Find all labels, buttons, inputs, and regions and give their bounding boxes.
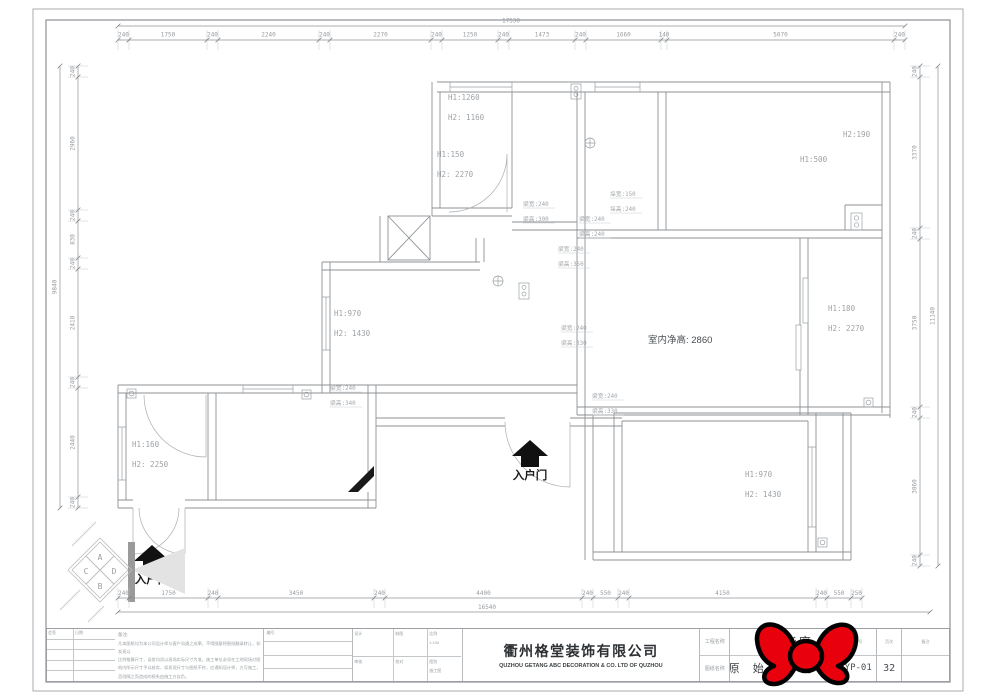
overall-dim: 16540	[478, 604, 496, 611]
compass-letter-c: C	[84, 567, 89, 576]
dim-label: 4150	[715, 590, 730, 597]
dim-label: 240	[912, 228, 919, 239]
drain-icon	[127, 389, 136, 398]
dim-label: 240	[894, 32, 905, 39]
dim-label: 550	[600, 590, 611, 597]
notes-line: 比例推算尺寸，误差均须以现场实际尺寸为准，施工单位必须在工地现场对图	[118, 656, 260, 664]
dim-label: 1750	[161, 32, 176, 39]
room-height-label: H2: 2270	[828, 324, 865, 333]
window-symbols	[118, 82, 816, 527]
sliding-door-symbol	[796, 278, 808, 370]
beam-label: 梁宽:240	[523, 200, 549, 208]
compass-letter-d: D	[112, 567, 117, 576]
dim-label: 5070	[773, 32, 788, 39]
drawing-no: YP-01	[840, 655, 876, 682]
dim-label: 3370	[912, 145, 919, 160]
beam-label: 梁高:330	[592, 407, 618, 415]
dim-label: 140	[659, 32, 670, 39]
room-height-label: H1:970	[334, 309, 362, 318]
room-height-label: H1:970	[745, 470, 773, 479]
dim-label: 1250	[463, 32, 478, 39]
dim-label: 3750	[912, 315, 919, 330]
annotation-layer: 2401750240224024022702401250240147324016…	[52, 18, 941, 615]
dim-label: 240	[208, 590, 219, 597]
beam-label: 梁高:340	[330, 399, 356, 407]
dim-label: 240	[319, 32, 330, 39]
dim-label: 240	[70, 497, 77, 508]
dim-label: 1750	[161, 590, 176, 597]
beam-label: 垛宽:150	[610, 190, 636, 198]
room-height-label: H1:160	[132, 440, 160, 449]
compass-letter-b: B	[98, 582, 103, 591]
door-arcs	[133, 154, 570, 554]
room-height-label: H1:180	[828, 304, 856, 313]
compass-letter-a: A	[98, 553, 103, 562]
page-no: 32	[877, 655, 901, 682]
entrance-label: 入户门	[135, 572, 170, 586]
drawing-no-label: 图号	[840, 629, 876, 655]
entrance-label: 入户门	[513, 468, 548, 482]
page-label: 页次	[877, 629, 901, 655]
ceiling-height-label: 室内净高: 2860	[648, 334, 712, 346]
drawing-no-column: 图号 YP-01	[839, 629, 876, 681]
dim-label: 2410	[70, 315, 77, 330]
dim-label: 240	[912, 555, 919, 566]
compass: A C D B	[60, 522, 185, 622]
dim-label: 240	[70, 210, 77, 221]
room-height-label: H2: 1430	[334, 329, 371, 338]
serial-column: 编号	[263, 629, 352, 681]
sign-table: 会签 日期 备注: 凡本图纸均为本公司设计师与客户沟通之成果，不得随意将图纸翻录…	[47, 629, 263, 681]
dim-label: 550	[834, 590, 845, 597]
drain-icon	[864, 398, 873, 407]
room-height-label: H1:500	[800, 155, 828, 164]
project-name: 吾悦华府	[730, 629, 839, 655]
room-height-label: H2: 1160	[448, 113, 485, 122]
company-name-cn: 衢州格堂装饰有限公司	[504, 641, 659, 661]
date-col-label: 日期	[74, 629, 115, 639]
room-height-label: H1:150	[437, 150, 465, 159]
fixture-symbols	[127, 84, 873, 547]
drain-icon	[302, 390, 311, 399]
floorplan-sheet: 会签 日期 备注: 凡本图纸均为本公司设计师与客户沟通之成果，不得随意将图纸翻录…	[0, 0, 999, 700]
outlet-box-icon	[571, 84, 581, 99]
overall-dim: 9840	[52, 279, 59, 294]
drawing-name: 原 始 结 构 图	[730, 655, 839, 682]
dim-label: 240	[118, 32, 129, 39]
dim-label: 240	[912, 407, 919, 418]
corner-marker	[348, 466, 374, 492]
dim-label: 2240	[261, 32, 276, 39]
beam-label: 梁高:330	[561, 339, 587, 347]
floorplan-drawing: 入户门 入户门 A C D B 室内	[0, 0, 999, 700]
right-values-column: 吾悦华府 原 始 结 构 图	[729, 629, 839, 681]
beam-label: 梁宽:240	[592, 392, 618, 400]
dim-label: 240	[575, 32, 586, 39]
drain-icon	[818, 538, 827, 547]
beam-label: 梁高:240	[579, 230, 605, 238]
notes-line: 否则随之而造成的损失由施工方自负。	[118, 673, 260, 681]
inner-frame	[46, 20, 950, 682]
extra-column: 备注	[901, 629, 949, 681]
beam-label: 梁高:300	[523, 215, 549, 223]
dim-label: 2440	[70, 435, 77, 450]
dim-label: 240	[618, 590, 629, 597]
dim-label: 240	[582, 590, 593, 597]
dim-label: 2960	[70, 136, 77, 151]
room-height-label: H2: 1430	[745, 490, 782, 499]
dim-label: 240	[207, 32, 218, 39]
dim-label: 3060	[912, 479, 919, 494]
dim-label: 240	[816, 590, 827, 597]
dim-label: 1473	[535, 32, 550, 39]
notes-line: 凡本图纸均为本公司设计师与客户沟通之成果，不得随意将图纸翻录转让，如发现以	[118, 640, 260, 656]
overall-dim: 17530	[502, 18, 520, 25]
beam-label: 梁宽:240	[558, 245, 584, 253]
extra-label: 备注	[902, 629, 949, 655]
beam-label: 梁宽:240	[561, 324, 587, 332]
dim-label: 240	[431, 32, 442, 39]
mid-table: 设计 制图 比例1:100 审核 校对 图别施工图	[352, 629, 462, 681]
right-labels-column: 工程名称 图纸名称	[699, 629, 729, 681]
page-column: 页次 32	[876, 629, 901, 681]
dim-label: 240	[912, 66, 919, 77]
serial-label: 编号	[264, 629, 352, 641]
notes-title: 备注:	[118, 632, 128, 637]
dim-label: 4400	[476, 590, 491, 597]
entrance-arrow	[134, 545, 170, 571]
room-height-label: H2:190	[843, 130, 871, 139]
beam-label: 梁高:350	[558, 260, 584, 268]
overall-dim: 11140	[930, 307, 937, 325]
company-cell: 衢州格堂装饰有限公司 QUZHOU GETANG ABC DECORATION …	[462, 629, 699, 681]
drawing-label: 图纸名称	[700, 655, 729, 682]
shaft-symbol	[388, 216, 430, 260]
walls	[118, 82, 890, 560]
room-height-label: H2: 2270	[437, 170, 474, 179]
entrance-arrow	[512, 440, 548, 467]
title-block: 会签 日期 备注: 凡本图纸均为本公司设计师与客户沟通之成果，不得随意将图纸翻录…	[46, 628, 950, 682]
notes-line: 纸内所示尺寸予以核实，如发现尺寸与图纸不符，应通知设计师，方可施工，	[118, 664, 260, 672]
beam-label: 梁宽:240	[330, 384, 356, 392]
dim-label: 240	[118, 590, 129, 597]
ceiling-light-icon	[585, 138, 595, 148]
beam-label: 梁宽:240	[579, 215, 605, 223]
outer-frame	[33, 9, 963, 691]
dim-label: 240	[70, 66, 77, 77]
project-label: 工程名称	[700, 629, 729, 655]
dim-label: 2270	[373, 32, 388, 39]
dim-label: 250	[851, 590, 862, 597]
dim-label: 1660	[616, 32, 631, 39]
ceiling-light-icon	[493, 276, 503, 286]
room-height-label: H1:1260	[448, 93, 480, 102]
dim-label: 240	[70, 377, 77, 388]
outlet-box-icon	[519, 283, 529, 299]
beam-label: 垛高:240	[610, 205, 636, 213]
dim-label: 240	[498, 32, 509, 39]
dim-label: 240	[70, 258, 77, 269]
room-height-label: H2: 2250	[132, 460, 169, 469]
outlet-box-icon	[851, 213, 862, 230]
company-name-en: QUZHOU GETANG ABC DECORATION & CO. LTD O…	[499, 663, 663, 669]
sign-col-label: 会签	[47, 629, 73, 639]
dim-label: 830	[70, 234, 77, 245]
dim-label: 3450	[289, 590, 304, 597]
notes-cell: 备注: 凡本图纸均为本公司设计师与客户沟通之成果，不得随意将图纸翻录转让，如发现…	[115, 629, 263, 681]
dim-label: 240	[374, 590, 385, 597]
